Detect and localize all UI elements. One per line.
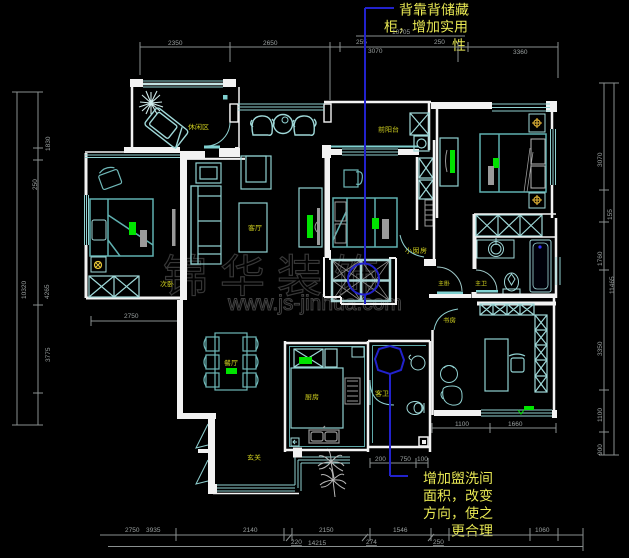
svg-text:1100: 1100 (455, 421, 469, 428)
svg-text:250: 250 (433, 539, 444, 546)
svg-text:1660: 1660 (508, 421, 523, 428)
svg-text:2650: 2650 (263, 40, 278, 47)
svg-text:1060: 1060 (535, 527, 550, 534)
svg-text:3070: 3070 (368, 48, 383, 55)
svg-text:250: 250 (434, 39, 445, 46)
svg-text:10705: 10705 (392, 29, 410, 36)
svg-text:1100: 1100 (597, 408, 604, 422)
svg-text:2350: 2350 (168, 40, 183, 47)
svg-text:11465: 11465 (609, 276, 616, 294)
svg-text:2140: 2140 (243, 527, 258, 534)
svg-text:274: 274 (366, 539, 377, 546)
svg-text:14215: 14215 (308, 540, 326, 547)
svg-text:3360: 3360 (513, 49, 528, 56)
svg-text:220: 220 (291, 539, 302, 546)
svg-text:100: 100 (417, 456, 428, 463)
svg-text:3350: 3350 (597, 341, 604, 356)
svg-text:3070: 3070 (597, 152, 604, 167)
svg-text:900: 900 (597, 444, 604, 455)
svg-text:2750: 2750 (124, 313, 139, 320)
svg-text:155: 155 (607, 209, 614, 220)
svg-text:1546: 1546 (393, 527, 408, 534)
svg-text:4265: 4265 (44, 284, 51, 299)
svg-text:10320: 10320 (21, 281, 28, 299)
svg-text:2750: 2750 (125, 527, 140, 534)
svg-text:250: 250 (32, 179, 39, 190)
svg-text:200: 200 (375, 456, 386, 463)
svg-text:3775: 3775 (45, 347, 52, 362)
svg-text:2150: 2150 (319, 527, 334, 534)
svg-text:1830: 1830 (45, 136, 52, 151)
svg-text:3935: 3935 (146, 527, 161, 534)
svg-text:1760: 1760 (597, 251, 604, 266)
svg-text:750: 750 (400, 456, 411, 463)
